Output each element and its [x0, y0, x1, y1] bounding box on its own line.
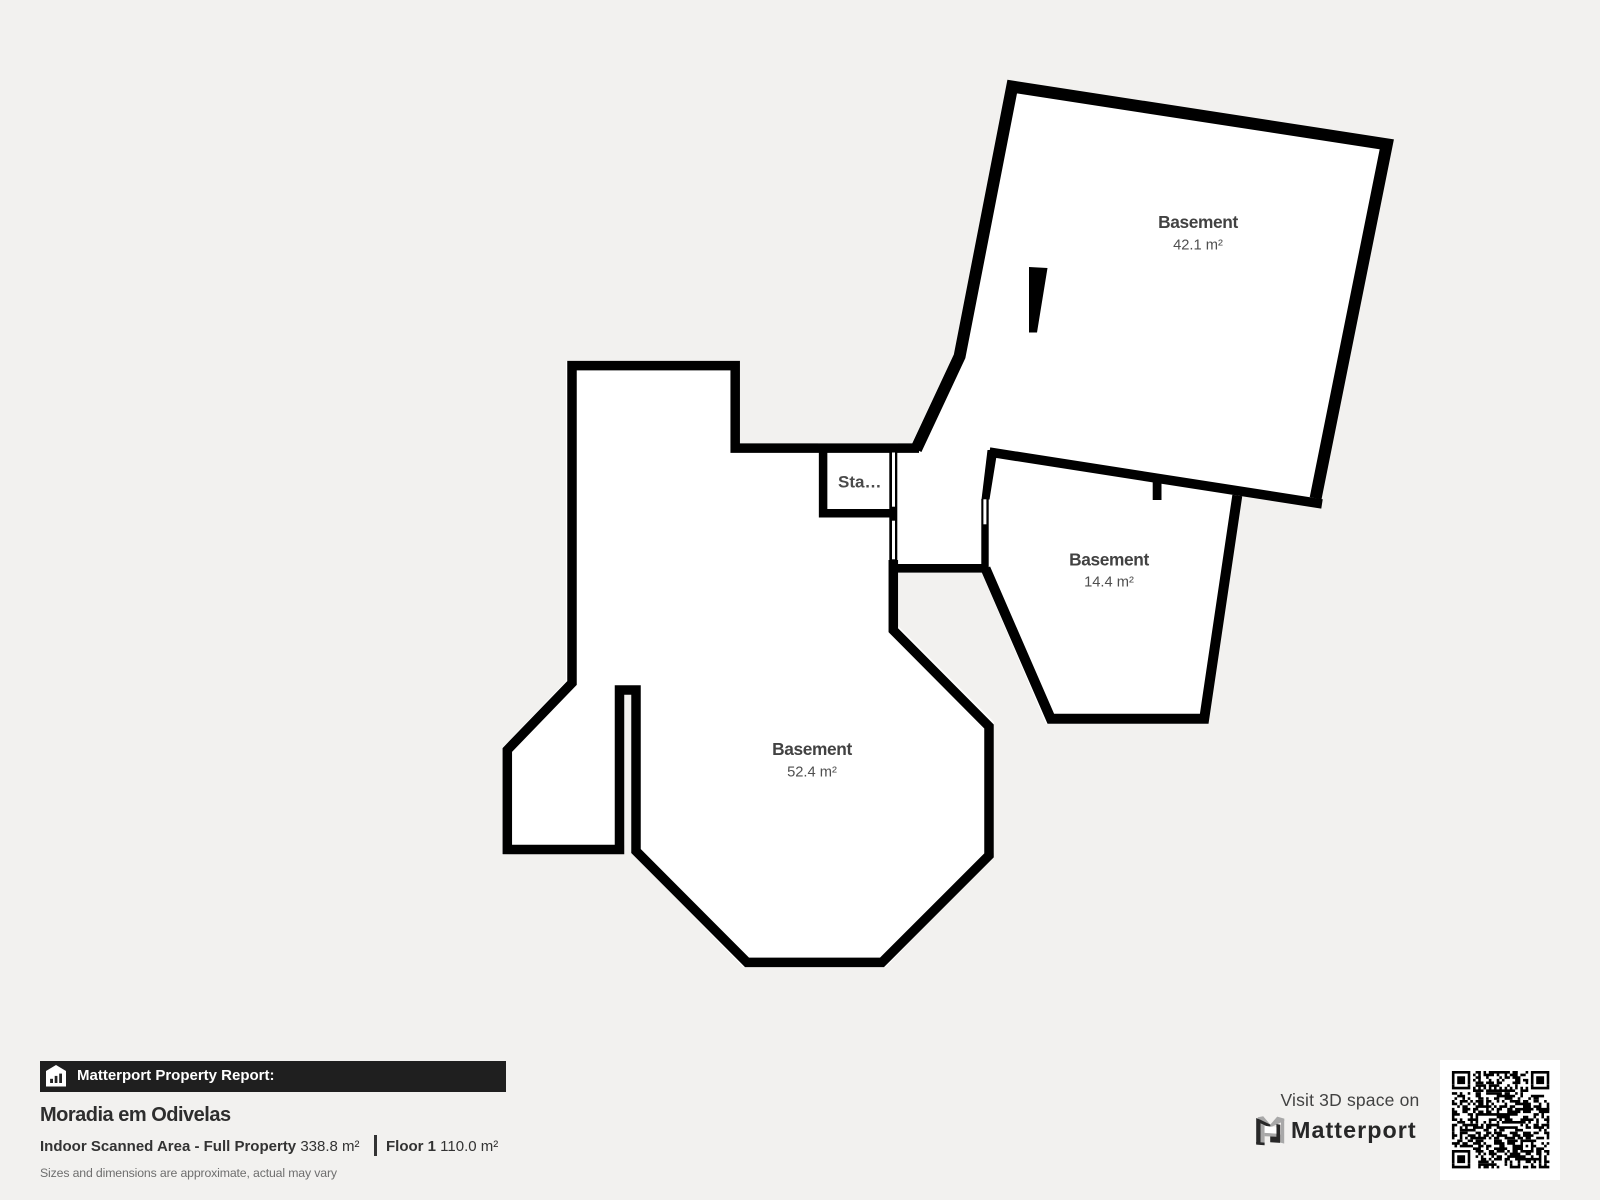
svg-text:Basement: Basement: [772, 739, 852, 759]
svg-text:Basement: Basement: [1069, 550, 1149, 570]
svg-text:Sta…: Sta…: [838, 473, 881, 492]
svg-text:42.1 m²: 42.1 m²: [1173, 238, 1223, 254]
svg-text:52.4 m²: 52.4 m²: [787, 765, 837, 781]
svg-text:Basement: Basement: [1158, 212, 1238, 232]
svg-text:14.4 m²: 14.4 m²: [1084, 575, 1134, 591]
